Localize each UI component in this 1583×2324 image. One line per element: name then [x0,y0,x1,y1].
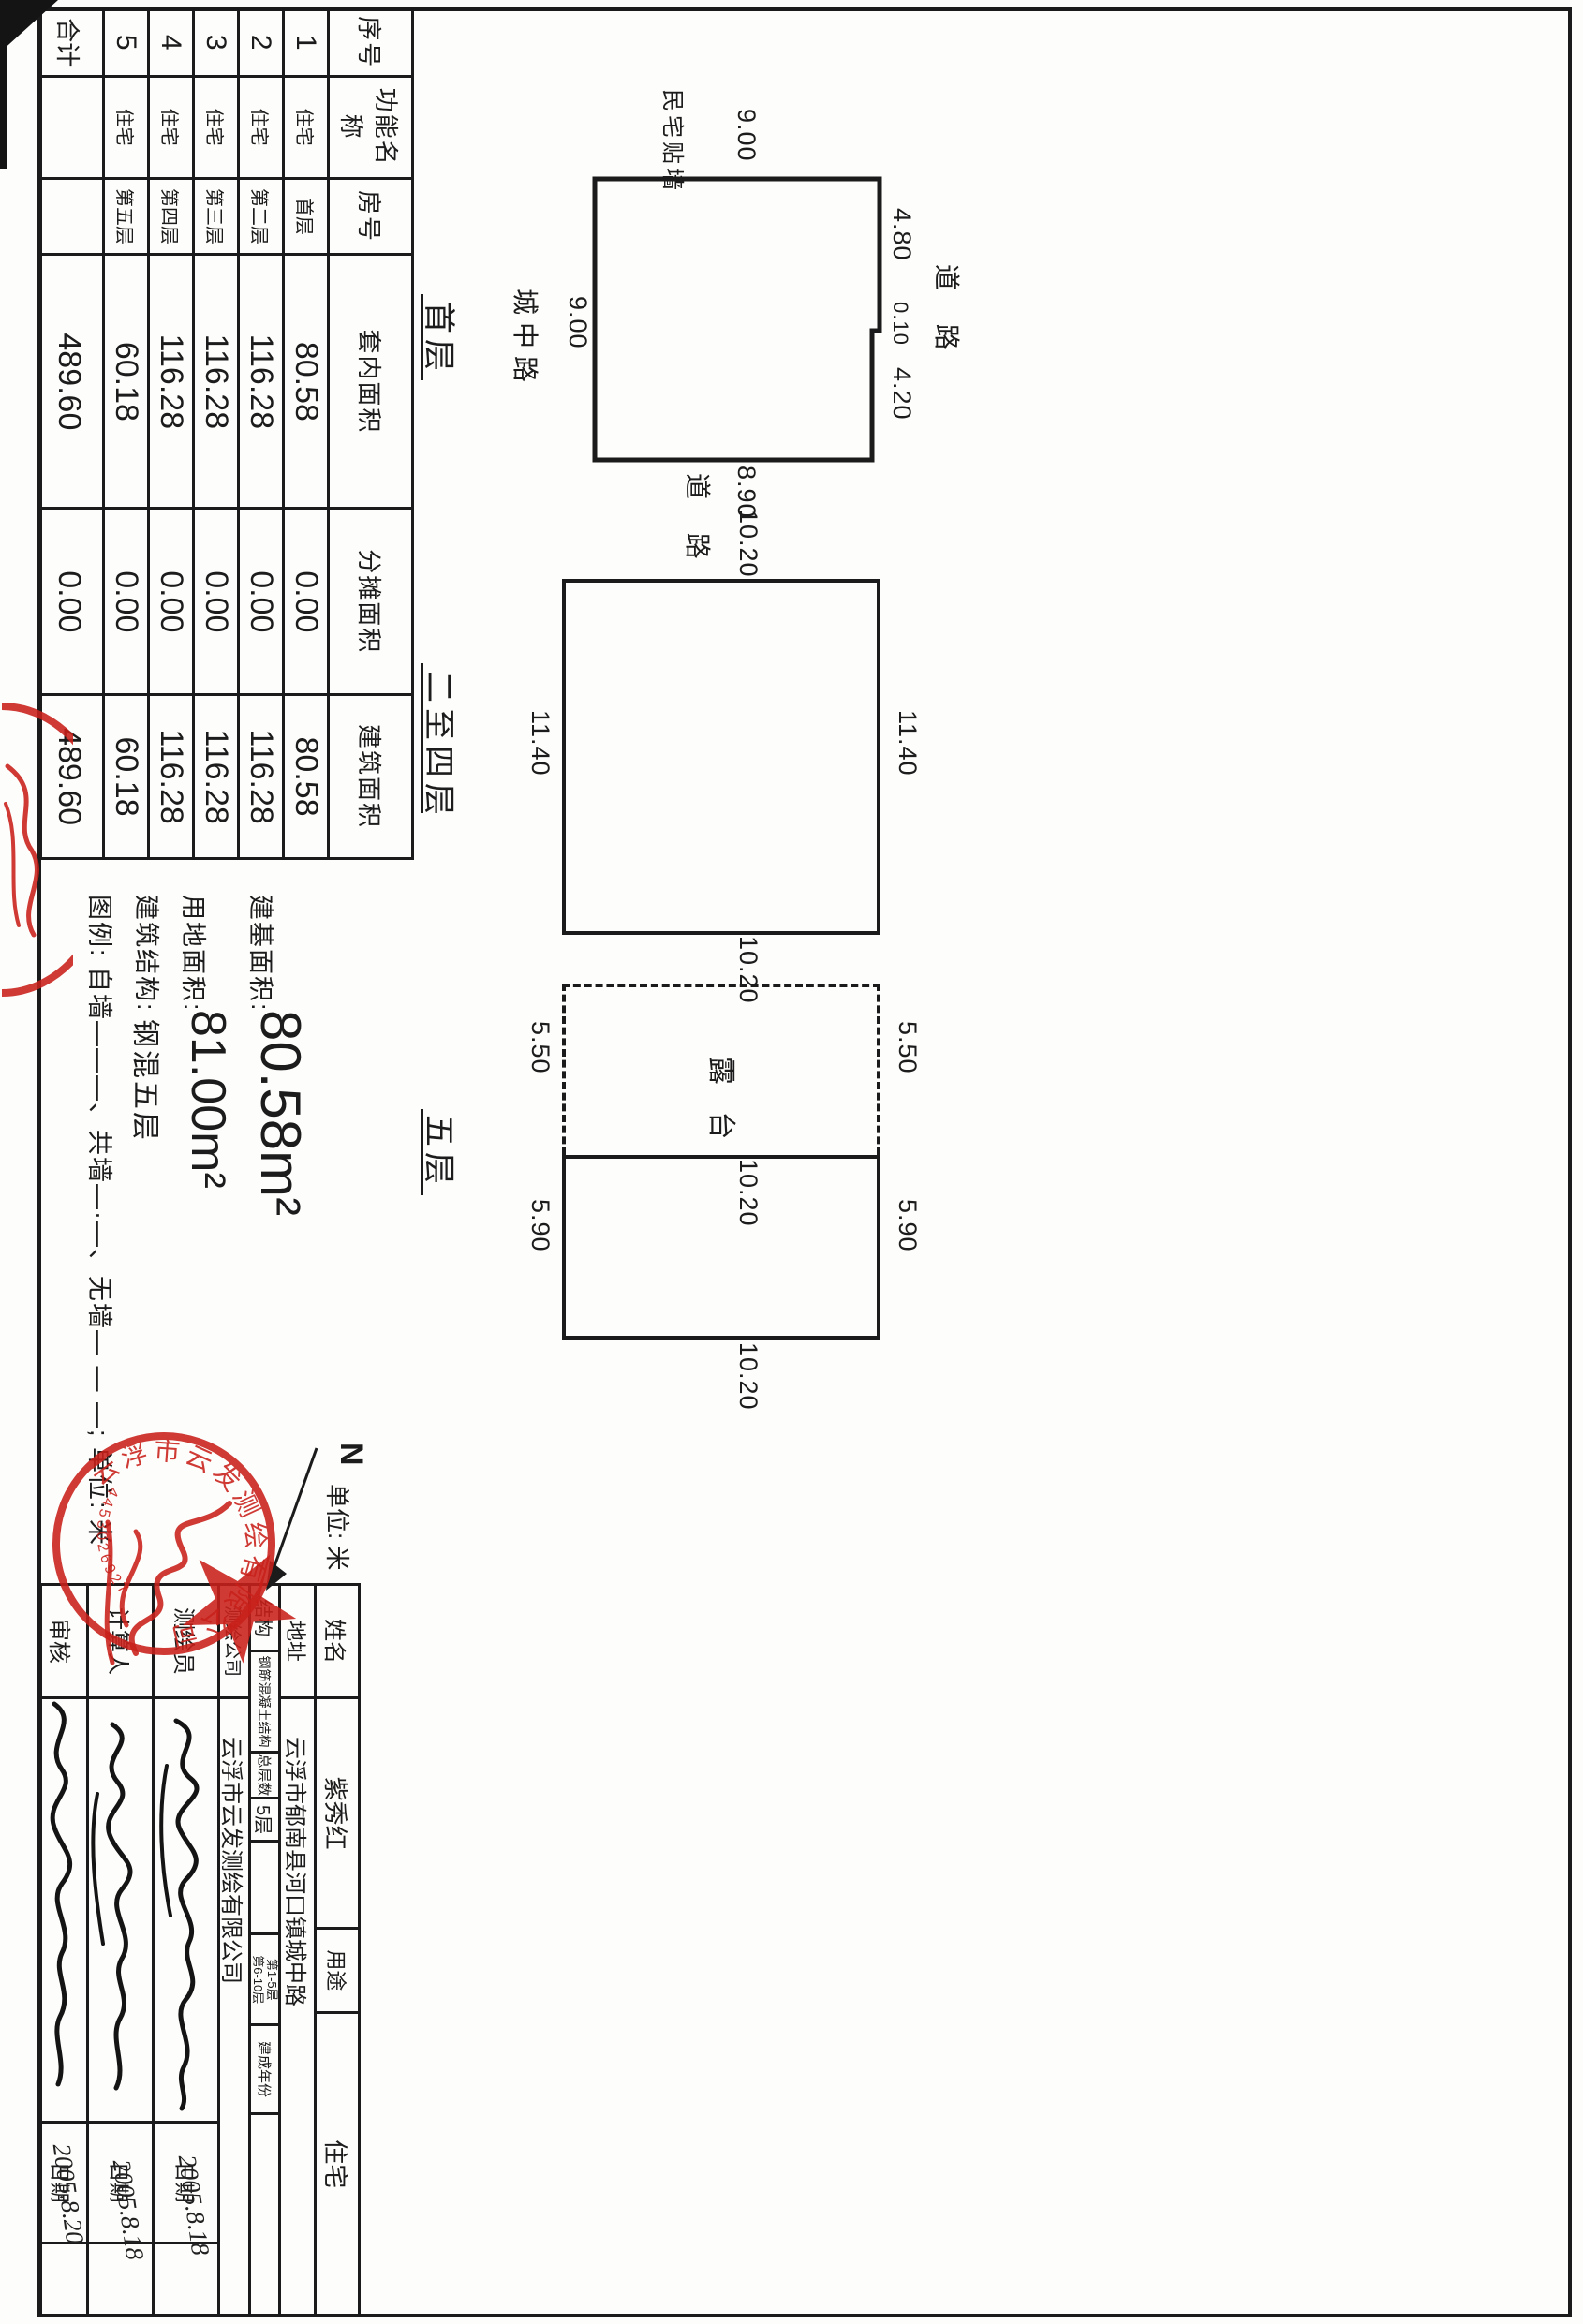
info-table-cell: 姓名 [314,1586,358,1699]
signature-scribble [88,1710,150,2122]
base-area-label: 建基面积: [244,895,281,1013]
scanned-survey-document: 序号功能名称房号套内面积分摊面积建筑面积1住宅首层80.580.0080.582… [0,0,1583,2324]
dim-label: 5.50 [893,1021,922,1074]
info-table-cell [248,1843,278,1935]
dim-label: 10.20 [733,1159,762,1227]
area-table-cell: 116.28 [147,696,192,857]
dim-label: 5.90 [525,1199,555,1252]
area-table-cell: 住宅 [147,78,192,180]
signature-scribble [37,1691,86,2122]
area-table-cell: 第五层 [102,180,147,256]
dim-label: 4.80 [887,208,916,261]
area-table-cell: 首层 [282,180,327,256]
floor5-room-outline [562,1155,880,1340]
area-table-cell: 1 [282,10,327,78]
floor5-label: 五层 [419,1115,465,1190]
area-table-header: 套内面积 [327,256,411,510]
dim-label: 10.20 [733,936,762,1004]
area-table-cell [37,180,102,256]
info-table-cell: 紫秀红 [314,1699,358,1930]
info-table-cell [248,2115,278,2315]
floor1-plan-outline [592,176,882,463]
info-table-cell: 住宅 [314,2014,358,2315]
info-table-cell: 第1-5层 第6-10层 [248,1935,278,2026]
area-table-cell: 第四层 [147,180,192,256]
area-table-cell: 0.00 [37,510,102,696]
dim-label: 0.10 [888,302,912,346]
area-table-cell: 116.28 [192,696,237,857]
area-table-cell: 4 [147,10,192,78]
info-table-cell: 云浮市云发测绘有限公司 [217,1699,248,2315]
signature-scribble [155,1710,217,2122]
area-table-cell: 0.00 [102,510,147,696]
area-table-cell: 80.58 [282,696,327,857]
area-table-cell: 住宅 [102,78,147,180]
dim-label: 11.40 [893,710,922,777]
dim-label: 10.20 [733,510,762,578]
north-label: N [333,1443,369,1466]
area-table-cell: 0.00 [237,510,282,696]
info-table-cell [37,2244,86,2315]
area-table-cell: 第三层 [192,180,237,256]
floor2to4-label: 二至四层 [419,671,465,821]
area-table-cell: 116.28 [237,256,282,510]
road-label-right: 道 路 [680,473,718,572]
area-table-cell: 116.28 [192,256,237,510]
floor5-label-underline [421,1109,423,1195]
dim-label: 11.40 [525,710,555,777]
scan-artifact-corner [0,0,58,52]
area-table-cell: 0.00 [192,510,237,696]
floor2to4-plan-outline [562,579,880,935]
info-table-cell: 5层 [248,1799,278,1843]
area-table-cell: 3 [192,10,237,78]
area-table-cell: 住宅 [192,78,237,180]
info-table-cell: 用途 [314,1930,358,2013]
area-table-header: 房号 [327,180,411,256]
area-table-cell: 5 [102,10,147,78]
base-area-value: 80.58m² [248,1010,313,1216]
area-table-cell: 116.28 [237,696,282,857]
area-table-cell: 116.28 [147,256,192,510]
road-label-top: 道 路 [929,264,967,363]
info-table-cell: 建成年份 [248,2026,278,2114]
terrace-label: 露 台 [703,1057,745,1148]
info-table-cell [152,2244,217,2315]
floor1-label-underline [421,294,423,380]
area-table-header: 分摊面积 [327,510,411,696]
dim-label: 4.20 [887,367,916,421]
dim-label: 5.90 [893,1199,922,1252]
area-table-cell: 住宅 [282,78,327,180]
area-table-cell: 80.58 [282,256,327,510]
land-area-label: 用地面积: [177,895,214,1013]
dim-label: 9.00 [732,109,761,162]
dim-label: 5.50 [525,1021,555,1074]
area-table-header: 建筑面积 [327,696,411,857]
floor1-label: 首层 [419,302,465,377]
area-table-cell: 60.18 [102,256,147,510]
area-table-cell: 0.00 [147,510,192,696]
road-label-chengzhong: 城中路 [508,289,545,390]
scan-artifact-edge [0,0,7,169]
document-sheet: 序号功能名称房号套内面积分摊面积建筑面积1住宅首层80.580.0080.582… [0,0,1583,2324]
red-signature-scribble [75,1475,248,1691]
area-table-header: 序号 [327,10,411,78]
structure-label: 建筑结构: [130,895,167,1013]
floor2to4-label-underline [421,663,423,813]
info-table-cell: 总层数 [248,1754,278,1800]
area-table-cell [37,78,102,180]
partial-seal [0,701,73,1000]
area-table-header: 功能名称 [327,78,411,180]
neighbor-wall-label: 民宅贴墙 [658,89,691,194]
area-table-cell: 489.60 [37,256,102,510]
area-table-cell: 第二层 [237,180,282,256]
area-table-cell: 住宅 [237,78,282,180]
info-table-cell: 云浮市郁南县河口镇城中路 [278,1699,314,2315]
land-area-value: 81.00m² [180,1010,236,1189]
floor-area-table: 序号功能名称房号套内面积分摊面积建筑面积1住宅首层80.580.0080.582… [39,7,414,860]
area-table-cell: 2 [237,10,282,78]
structure-value: 钢混五层 [127,1019,169,1143]
area-table-cell: 0.00 [282,510,327,696]
area-table-cell: 60.18 [102,696,147,857]
dim-label: 10.20 [733,1342,762,1411]
dim-label: 9.00 [563,296,592,349]
